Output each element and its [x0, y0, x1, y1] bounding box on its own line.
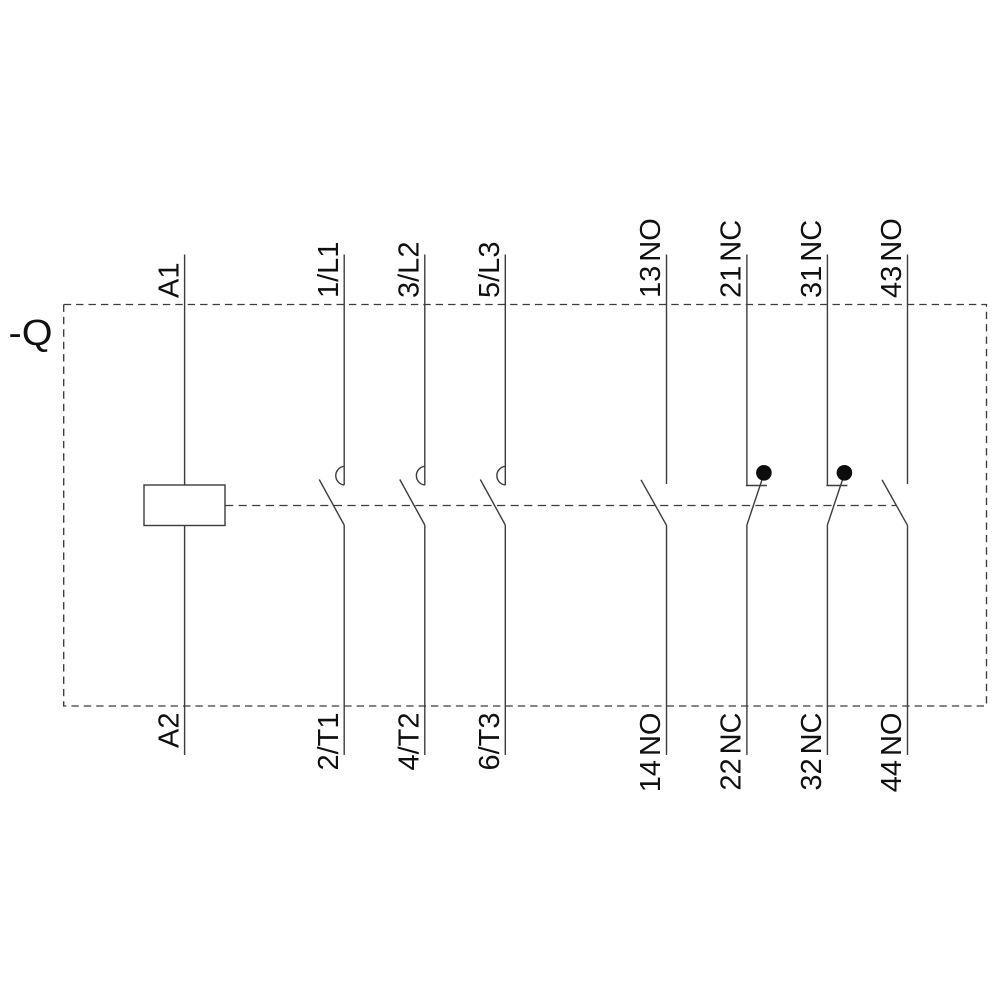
svg-text:3/L2: 3/L2	[394, 242, 426, 298]
svg-text:13NO: 13NO	[635, 218, 667, 298]
svg-text:21NC: 21NC	[716, 220, 748, 298]
svg-text:2/T1: 2/T1	[313, 713, 345, 771]
svg-text:44NO: 44NO	[876, 713, 908, 793]
svg-text:-Q: -Q	[9, 312, 53, 353]
svg-text:22NC: 22NC	[716, 713, 748, 791]
svg-text:A1: A1	[153, 263, 185, 298]
svg-text:14NO: 14NO	[635, 713, 667, 793]
svg-text:1/L1: 1/L1	[313, 242, 345, 298]
svg-text:A2: A2	[153, 713, 185, 748]
svg-text:31NC: 31NC	[796, 220, 828, 298]
svg-text:32NC: 32NC	[796, 713, 828, 791]
svg-text:4/T2: 4/T2	[394, 713, 426, 771]
svg-text:6/T3: 6/T3	[474, 713, 506, 771]
svg-text:43NO: 43NO	[876, 218, 908, 298]
svg-text:5/L3: 5/L3	[474, 242, 506, 298]
